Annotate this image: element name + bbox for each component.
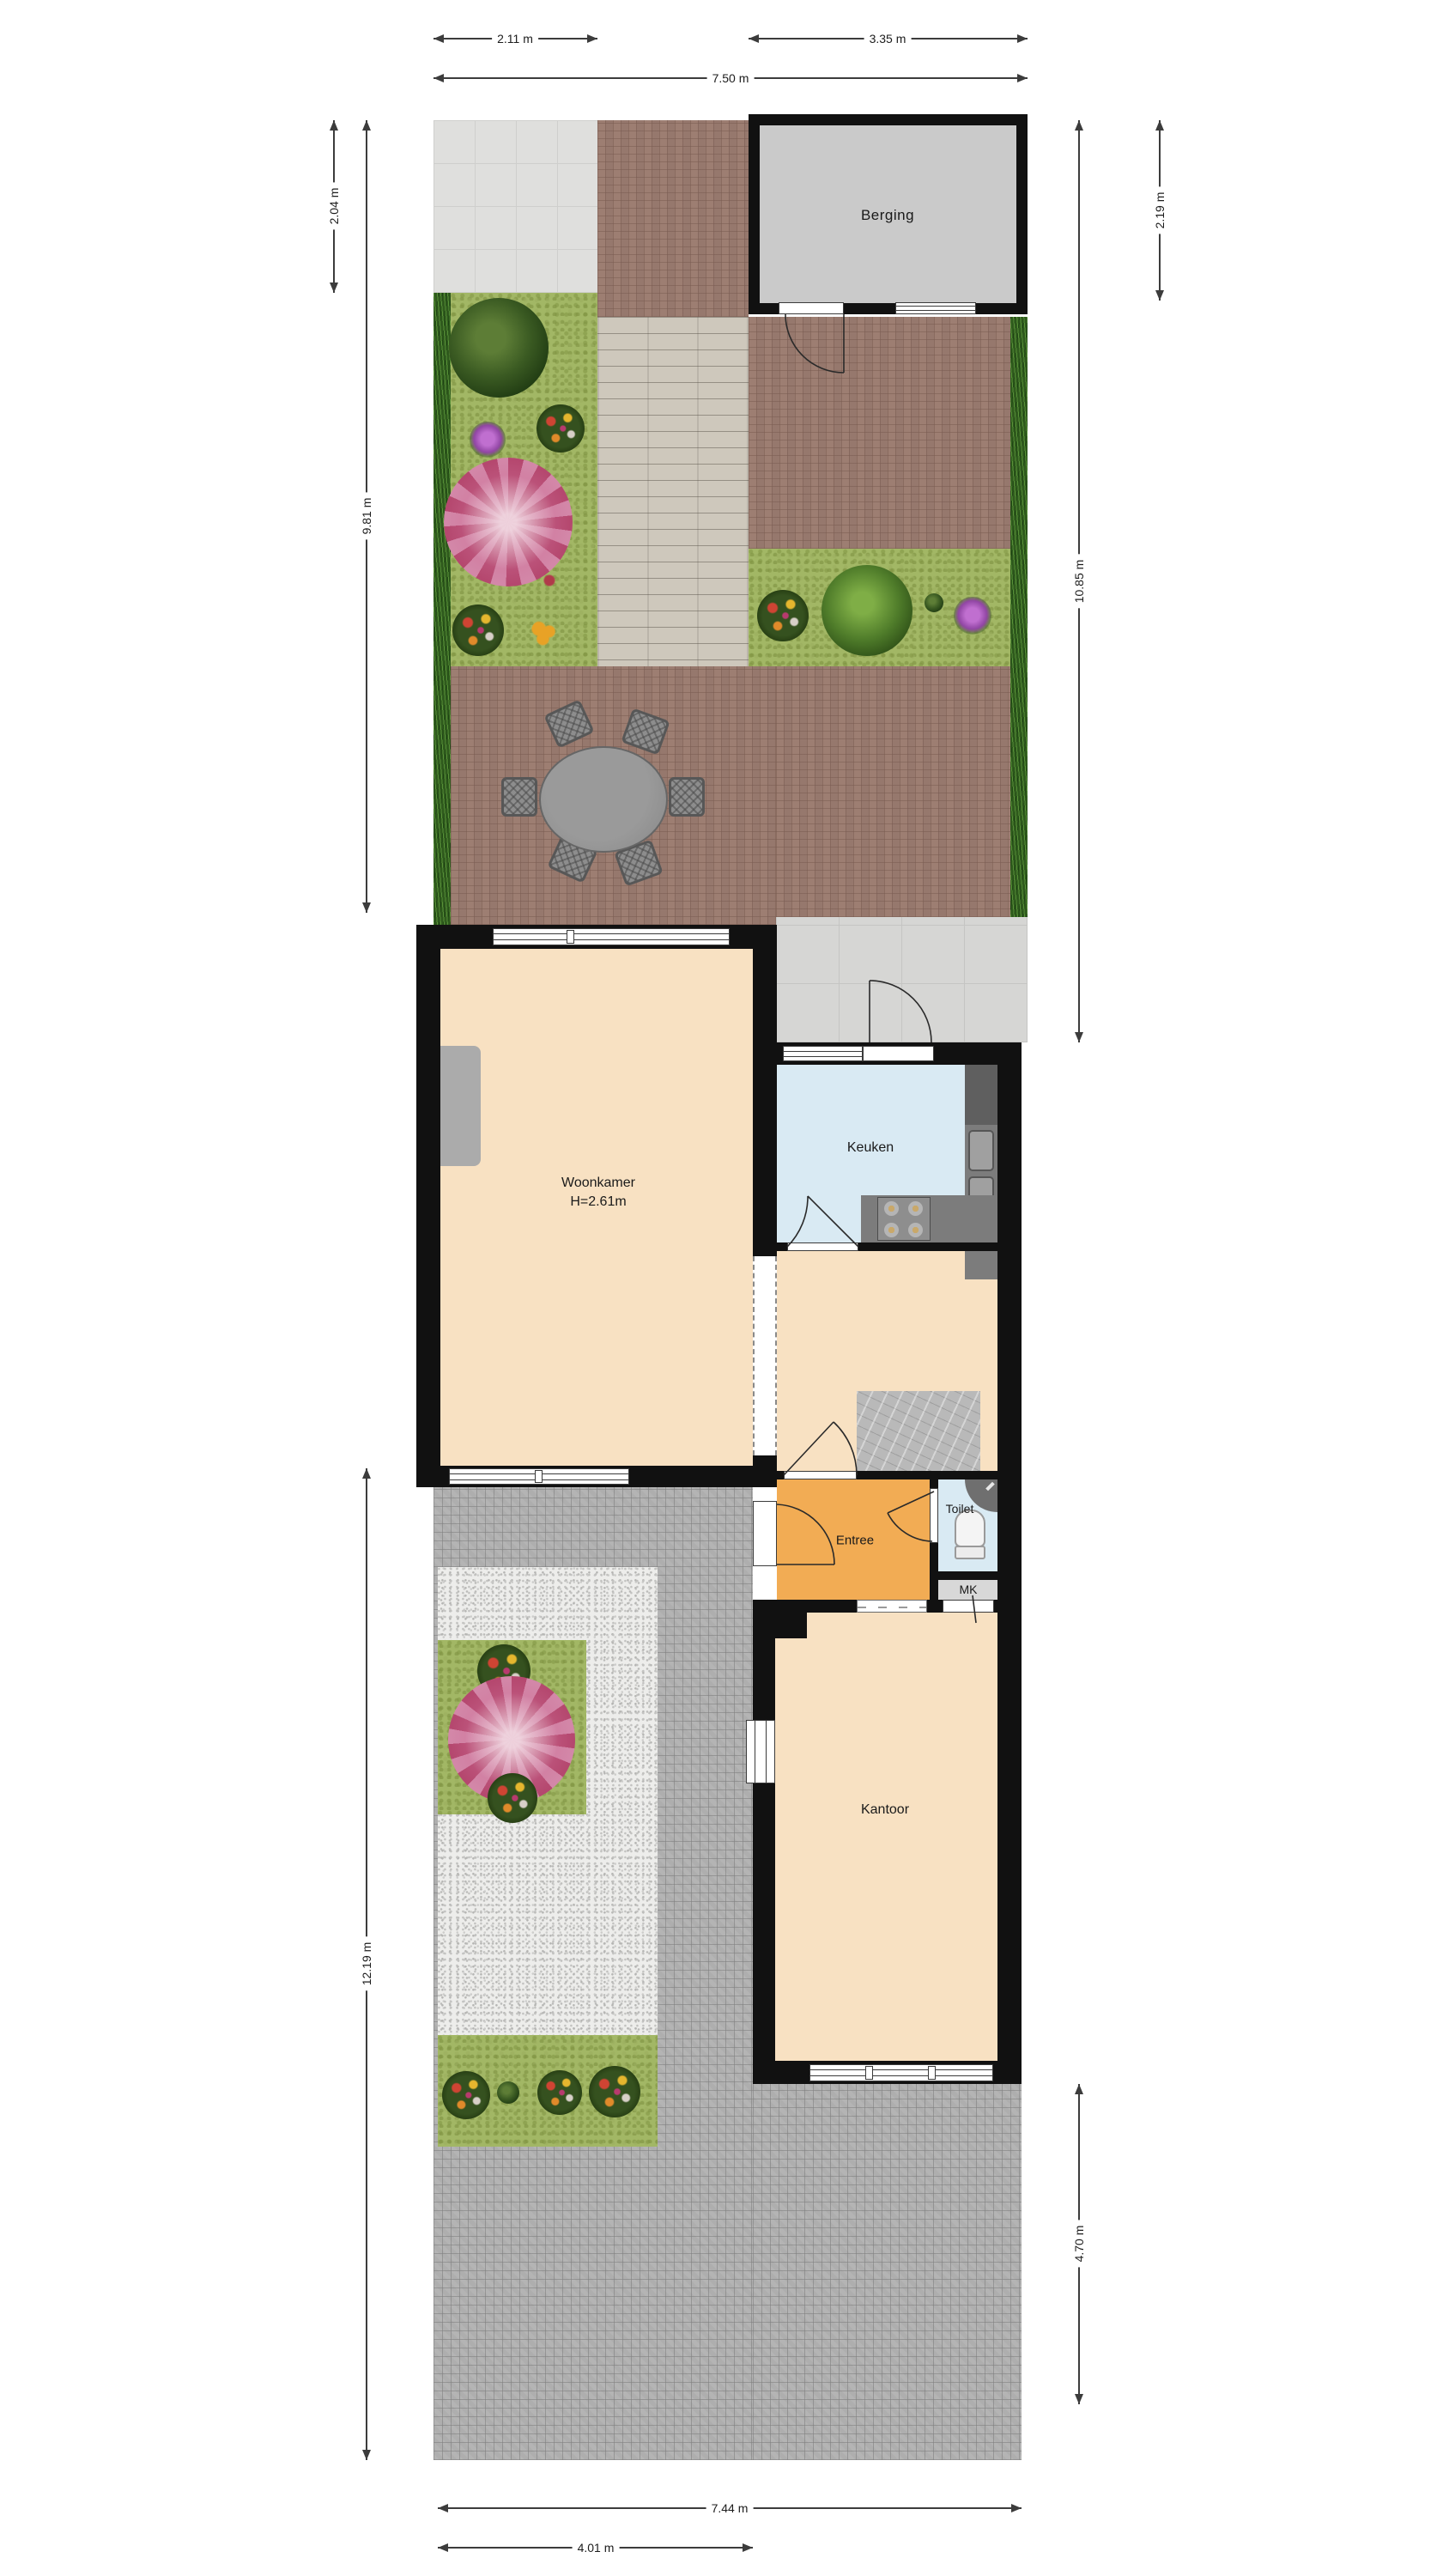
dimension-value: 4.70 m [1072, 2221, 1086, 2268]
backdoor-keuken [863, 1046, 934, 1061]
toilet-label: Toilet [946, 1502, 974, 1516]
door-opening-keuken [787, 1242, 858, 1251]
flower-bush-icon [488, 1773, 537, 1823]
dimension-value: 10.85 m [1072, 555, 1086, 609]
mk-label: MK [960, 1583, 978, 1596]
red-flower-icon [543, 574, 555, 586]
flower-bush-icon [537, 404, 585, 453]
door-opening-toilet [930, 1488, 938, 1543]
front-door-opening [753, 1501, 777, 1566]
window-kantoor-front [809, 2064, 993, 2081]
garden-border-right [1010, 317, 1028, 917]
entree-label: Entree [836, 1534, 874, 1548]
kitchen-sink [968, 1130, 994, 1171]
kantoor-floor [775, 1613, 997, 2061]
window-kantoor-side [746, 1720, 775, 1783]
flower-bush-icon [452, 605, 504, 656]
fireplace [440, 1046, 481, 1166]
window-mullion [865, 2066, 873, 2080]
terrace-chair [501, 777, 537, 817]
woonkamer-name: Woonkamer [561, 1174, 635, 1193]
berging-label: Berging [861, 207, 914, 224]
orange-flowers-icon [530, 619, 558, 647]
berging-window [895, 302, 976, 314]
burner-icon [884, 1223, 899, 1237]
burner-icon [884, 1201, 899, 1216]
window-keuken [783, 1046, 863, 1061]
brick-patio-right [749, 317, 1010, 549]
entry-step [775, 1608, 807, 1638]
berging-door [779, 302, 844, 314]
burner-icon [908, 1201, 923, 1216]
wall-toilet-mk [938, 1571, 997, 1580]
dimension-value: 7.44 m [706, 2501, 754, 2515]
terrace-right [776, 666, 1010, 917]
dimension-value: 12.19 m [360, 1937, 373, 1991]
bush-icon [449, 298, 549, 398]
dimension-value: 2.11 m [492, 32, 538, 46]
purple-flowers-icon [954, 597, 991, 635]
dimension-value: 2.19 m [1153, 187, 1167, 234]
window-mullion [567, 930, 574, 944]
bush-icon [822, 565, 912, 656]
purple-flowers-icon [470, 422, 506, 458]
flower-bush-icon [442, 2071, 490, 2119]
wall-left [416, 925, 440, 1487]
brick-path-top [597, 120, 749, 317]
keuken-label: Keuken [847, 1140, 894, 1156]
dimension-value: 4.01 m [573, 2541, 620, 2555]
concrete-tiles-area [433, 120, 597, 293]
garden-border-left [433, 293, 451, 925]
kitchen-counter-corner [965, 1065, 997, 1125]
stairs [857, 1391, 980, 1471]
flower-bush-icon [537, 2070, 582, 2115]
dimension-value: 2.04 m [327, 183, 341, 230]
terrace-chair [669, 777, 705, 817]
flower-bush-icon [757, 590, 809, 641]
dining-table [539, 746, 668, 853]
woonkamer-height: H=2.61m [561, 1193, 635, 1212]
woonkamer-label: Woonkamer H=2.61m [561, 1174, 635, 1212]
small-bush-icon [497, 2081, 519, 2104]
front-paving-bottom [753, 2084, 1022, 2460]
back-tile-path [776, 917, 1028, 1042]
small-bush-icon [925, 593, 943, 612]
pink-plant-icon [444, 458, 573, 586]
wall-right [997, 1042, 1022, 2084]
passage-woonkamer-hal [753, 1256, 777, 1455]
burner-icon [908, 1223, 923, 1237]
mk-door [943, 1600, 994, 1613]
window-woonkamer-garden [493, 928, 730, 945]
toilet-tank [955, 1546, 985, 1559]
kantoor-label: Kantoor [861, 1802, 909, 1818]
wall-kantoor-left [753, 1600, 775, 2084]
opening-entree-kantoor [857, 1600, 927, 1613]
door-opening-hal [784, 1471, 857, 1479]
flower-bush-icon [589, 2066, 640, 2117]
wood-deck-path [597, 317, 749, 666]
window-mullion [928, 2066, 936, 2080]
dimension-value: 3.35 m [864, 32, 912, 46]
floorplan-canvas: Berging [0, 0, 1449, 2576]
dimension-value: 9.81 m [360, 493, 373, 540]
window-mullion [535, 1470, 543, 1483]
dimension-value: 7.50 m [707, 71, 755, 85]
